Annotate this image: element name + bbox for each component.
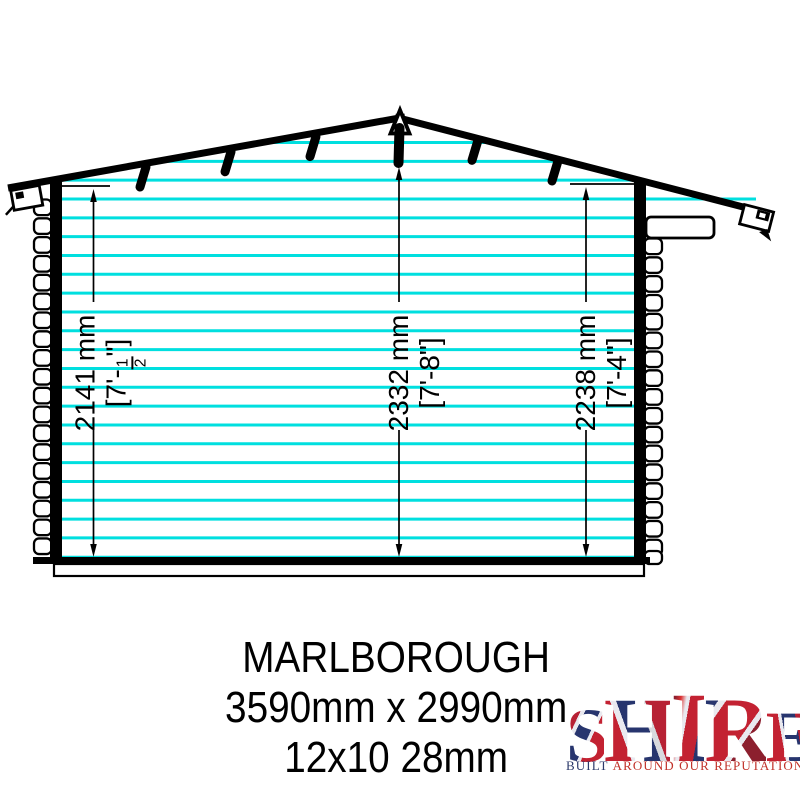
dimension-label-left: 2141 mm [7'-12"]	[69, 315, 148, 432]
log-ends-right	[645, 239, 663, 565]
elevation-diagram	[0, 0, 800, 625]
floor-band	[54, 564, 644, 576]
dimension-label-middle: 2332 mm [7'-8"]	[383, 315, 445, 432]
dimension-imperial: [7'-4"]	[601, 315, 632, 432]
log-ends-left	[34, 200, 52, 555]
brand-tagline: BUILTAROUND OUR REPUTATION	[566, 758, 800, 774]
dimension-metric: 2332 mm	[383, 315, 414, 432]
product-name: MARLBOROUGH	[48, 633, 745, 683]
dimension-metric: 2238 mm	[570, 315, 601, 432]
purlin	[646, 217, 714, 238]
dimension-metric: 2141 mm	[69, 315, 100, 432]
roof-slope-left	[8, 117, 405, 188]
fraction: 12	[115, 356, 148, 369]
dimension-imperial: [7'-8"]	[414, 315, 445, 432]
page: 2141 mm [7'-12"] 2332 mm [7'-8"] 2238 mm…	[0, 0, 800, 800]
roof-wall-notch	[643, 172, 648, 178]
dimension-label-right: 2238 mm [7'-4"]	[570, 315, 632, 432]
fascia-right	[737, 205, 778, 242]
brand-logo: SHIRE BUILTAROUND OUR REPUTATION	[566, 686, 800, 774]
dimension-imperial: [7'-12"]	[100, 315, 148, 432]
